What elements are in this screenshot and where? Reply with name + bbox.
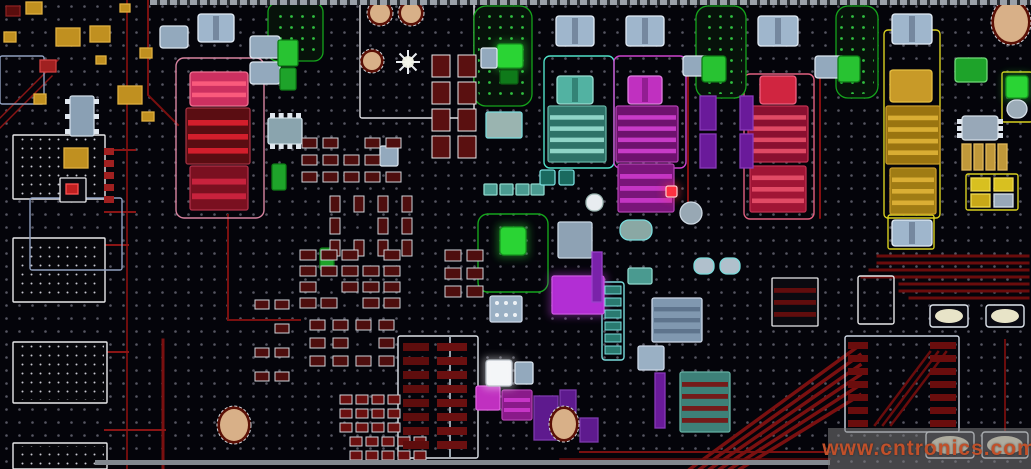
capacitor-gray-small <box>250 36 280 58</box>
soic-pads-left <box>403 427 429 435</box>
chip-cluster <box>365 172 380 182</box>
ic-gray-right-pin <box>998 119 1003 124</box>
chip-cluster <box>255 300 269 309</box>
pad-grid-red <box>382 451 394 460</box>
pad-grid-red <box>356 409 368 418</box>
chip-cluster <box>333 356 348 366</box>
led-white-glow <box>483 357 515 389</box>
block-magenta-striped-stripe <box>504 398 530 402</box>
component-teal-mid <box>628 268 652 284</box>
resistor-column <box>432 109 450 131</box>
component-darkred <box>6 6 20 16</box>
cap-footprint-1-dots <box>16 138 102 196</box>
pad-gold-strip <box>998 144 1007 170</box>
chip-cluster <box>386 172 401 182</box>
ic-gray-pins-pin <box>287 113 292 118</box>
chip-cluster <box>378 196 388 212</box>
soic-pads-inner <box>437 427 467 435</box>
capacitor-gray-small <box>160 26 188 48</box>
chip-cluster <box>356 320 371 330</box>
chip-cluster <box>402 218 412 234</box>
top-ruler <box>150 0 1031 5</box>
strip-purple <box>700 96 716 130</box>
capacitor-round-gray <box>720 258 740 274</box>
mount-hole <box>552 409 576 439</box>
component-teal-small <box>516 184 529 195</box>
ic-gray-small <box>638 346 664 370</box>
inductor-teal-big-stripe <box>682 394 728 399</box>
chip-cluster <box>300 298 316 308</box>
pad-grid-red <box>382 437 394 446</box>
chip-cluster <box>342 250 358 260</box>
component-red <box>40 60 56 72</box>
chip-cluster <box>342 266 358 276</box>
pad-magenta <box>476 386 500 410</box>
pad-grid-red <box>388 423 400 432</box>
ic-gray-6pin-pin <box>495 313 499 317</box>
chip-cluster <box>379 320 394 330</box>
pad-grid-red <box>340 409 352 418</box>
chip-cluster <box>363 266 379 276</box>
box-white-pads-stripe <box>774 300 816 305</box>
strip-purple <box>580 418 598 442</box>
teal-strip-pins <box>605 346 621 354</box>
chip-cluster <box>275 348 289 357</box>
chip-cluster <box>402 196 412 212</box>
pad-grid-red <box>372 423 384 432</box>
chip-cluster <box>365 155 380 165</box>
resistor-column <box>432 136 450 158</box>
pad-grid-red <box>414 451 426 460</box>
chip-cluster <box>356 356 371 366</box>
soic-pads-left <box>403 441 429 449</box>
soic-right-pads-r <box>930 368 956 375</box>
led-green-glow <box>494 41 526 71</box>
capacitor-gray-stripe <box>213 16 219 40</box>
ic-gray-right-pin <box>998 133 1003 138</box>
ic-body-topleft-pin <box>94 129 99 134</box>
pad-gold <box>90 26 110 42</box>
soic-right-pads-r <box>930 381 956 388</box>
ic-gray-right-pin <box>957 119 962 124</box>
pad-column-small <box>104 172 114 179</box>
chip-cluster <box>344 155 359 165</box>
soic-right-pads-l <box>848 381 868 388</box>
chip-cluster <box>323 138 338 148</box>
pad-grid-red <box>372 409 384 418</box>
chip-cluster <box>330 218 340 234</box>
capsule-pad-pad <box>991 309 1019 323</box>
cap-footprint-3-dots <box>16 345 104 400</box>
transistor-green <box>702 56 726 82</box>
chip-cluster <box>384 298 400 308</box>
component-green-small <box>272 164 286 190</box>
chip-cluster <box>445 286 461 297</box>
capacitor-gray-stripe <box>909 16 915 42</box>
ic-gray-6pin-pin <box>495 301 499 305</box>
component-teal-green <box>540 170 555 185</box>
soic-right-pads-l <box>848 420 868 427</box>
transistor-green <box>838 56 860 82</box>
mount-hole <box>994 2 1028 42</box>
ic-gray-6pin <box>490 296 522 322</box>
chip-cluster <box>467 286 483 297</box>
pad-gold <box>34 94 46 104</box>
capacitor-gray-small <box>250 62 280 84</box>
pad-column-small <box>104 196 114 203</box>
soic-right-pads-r <box>930 342 956 349</box>
pad-gold <box>26 2 42 14</box>
ic-body-topleft-pin <box>65 99 70 104</box>
pad-yellow <box>971 194 990 207</box>
chip-cluster <box>379 338 394 348</box>
ic-gray-pins-pin <box>270 144 275 149</box>
ic-body-topleft-pin <box>65 129 70 134</box>
pad-gold-strip <box>986 144 995 170</box>
pad-gold <box>118 86 142 104</box>
fiducial-starburst <box>402 56 414 68</box>
bottom-edge-bar <box>95 460 830 465</box>
soic-right-pads-r <box>930 394 956 401</box>
pad-yellow <box>994 194 1013 207</box>
resistor-column <box>432 82 450 104</box>
capacitor-gray-stripe <box>909 222 915 244</box>
resistor-column <box>458 109 476 131</box>
pad-gold <box>120 4 130 12</box>
chip-cluster <box>333 338 348 348</box>
pad-grid-red <box>340 395 352 404</box>
capacitor-gray-small <box>380 146 398 166</box>
chip-cluster <box>384 282 400 292</box>
component-round-gray <box>680 202 702 224</box>
chip-cluster <box>323 172 338 182</box>
soic-right-pads-l <box>848 368 868 375</box>
chip-cluster <box>321 250 337 260</box>
chip-cluster <box>321 298 337 308</box>
pad-round-white <box>586 194 603 211</box>
ic-gray-right-pin <box>998 126 1003 131</box>
chip-cluster <box>354 196 364 212</box>
chip-cluster <box>363 298 379 308</box>
mount-hole <box>370 3 390 23</box>
soic-right-pads-l <box>848 342 868 349</box>
ic-gray-pins-pin <box>279 144 284 149</box>
capacitor-round-gray <box>694 258 714 274</box>
chip-cluster <box>300 266 316 276</box>
component-teal-small <box>484 184 497 195</box>
pad-block-teal <box>486 112 522 138</box>
mount-hole <box>401 3 421 23</box>
chip-cluster <box>379 356 394 366</box>
led-red-glow <box>663 183 680 200</box>
chip-cluster <box>342 282 358 292</box>
soic-pads-inner <box>437 357 467 365</box>
pad-grid-red <box>388 409 400 418</box>
ic-gray-pins-pin <box>287 144 292 149</box>
transistor-green <box>280 68 296 90</box>
soic-pads-inner <box>437 343 467 351</box>
chip-cluster <box>384 250 400 260</box>
chip-cluster <box>300 282 316 292</box>
pad-gold-strip <box>962 144 971 170</box>
ic-steel-stripe <box>654 318 700 322</box>
resistor-column <box>458 136 476 158</box>
chip-cluster <box>365 138 380 148</box>
pcb-layout-screenshot: www.cntronics.com <box>0 0 1031 469</box>
component-gray-block <box>558 222 592 258</box>
box-white-pads-stripe <box>774 312 816 317</box>
soic-right-pads-l <box>848 355 868 362</box>
ic-gray-pins-pin <box>296 144 301 149</box>
capacitor-gray-stripe <box>642 18 648 44</box>
pad-grid-red <box>388 395 400 404</box>
component-teal-green <box>559 170 574 185</box>
chip-cluster <box>300 250 316 260</box>
chip-cluster <box>384 266 400 276</box>
resistor-column <box>432 55 450 77</box>
soic-pads-inner <box>437 399 467 407</box>
chip-cluster <box>445 268 461 279</box>
pad-grid-red <box>350 437 362 446</box>
chip-cluster <box>386 138 401 148</box>
chip-cluster <box>344 172 359 182</box>
led-green-glow <box>497 224 529 258</box>
pad-grid-red <box>372 395 384 404</box>
inductor-teal-big-stripe <box>682 382 728 387</box>
soic-right-pads-l <box>848 394 868 401</box>
component-gray-small <box>481 48 497 68</box>
ic-gray-6pin-pin <box>513 313 517 317</box>
teal-strip-pins <box>605 322 621 330</box>
transistor-green <box>278 40 298 66</box>
soic-pads-left <box>403 413 429 421</box>
component-teal-small <box>500 184 513 195</box>
ic-steel-stripe <box>654 329 700 333</box>
teal-strip-pins <box>605 334 621 342</box>
cap-footprint-4-dots <box>16 446 104 466</box>
pad-grid-red <box>366 451 378 460</box>
chip-cluster <box>467 250 483 261</box>
pcb-board-canvas[interactable] <box>0 0 1031 469</box>
ic-gray-right-pin <box>957 133 962 138</box>
soic-pads-inner <box>437 385 467 393</box>
chip-cluster <box>302 155 317 165</box>
chip-cluster <box>255 348 269 357</box>
pad-gold <box>4 32 16 42</box>
strip-purple <box>700 134 716 168</box>
soic-right-pads-r <box>930 420 956 427</box>
inductor-teal-big <box>680 372 730 432</box>
soic-right-pads-r <box>930 355 956 362</box>
component-gray-small <box>515 362 533 384</box>
teal-strip-pins <box>605 298 621 306</box>
capacitor-gray-stripe <box>775 18 781 44</box>
pad-column-small <box>104 160 114 167</box>
resistor-column <box>458 55 476 77</box>
teal-strip-pins <box>605 310 621 318</box>
box-white-pads-stripe <box>774 288 816 293</box>
chip-cluster <box>323 155 338 165</box>
chip-cluster <box>310 356 325 366</box>
ic-body-topleft-pin <box>65 114 70 119</box>
pad-grid-red <box>340 423 352 432</box>
strip-purple <box>740 96 753 130</box>
chip-cluster <box>310 320 325 330</box>
soic-pads-inner <box>437 413 467 421</box>
chip-cluster <box>330 196 340 212</box>
ic-gray-6pin-pin <box>513 301 517 305</box>
inductor-teal-big-stripe <box>682 418 728 423</box>
chip-cluster <box>302 172 317 182</box>
pad-grid-red <box>366 437 378 446</box>
soic-pads-left <box>403 385 429 393</box>
pad-gold <box>142 112 154 121</box>
pad-gold <box>96 56 106 64</box>
led-green-glow <box>1003 73 1031 101</box>
pad-yellow <box>994 178 1013 191</box>
ic-body-topleft-pin <box>94 99 99 104</box>
chip-cluster <box>402 240 412 256</box>
mount-hole <box>363 52 381 70</box>
ic-body-topleft <box>70 96 94 136</box>
ic-body-topleft-pin <box>94 114 99 119</box>
strip-purple <box>740 134 753 168</box>
component-round-gray <box>1007 100 1027 118</box>
block-magenta-striped-stripe <box>504 408 530 412</box>
inductor-teal-big-stripe <box>682 406 728 411</box>
chip-cluster <box>445 250 461 261</box>
component-green-dark <box>500 70 518 84</box>
ic-gray-6pin-pin <box>504 313 508 317</box>
ic-gray-pins-pin <box>279 113 284 118</box>
chip-cluster <box>302 138 317 148</box>
chip-cluster <box>275 324 289 333</box>
ic-steel-stripe <box>654 307 700 311</box>
mount-hole <box>220 409 248 441</box>
soic-pads-left <box>403 399 429 407</box>
chip-cluster <box>467 268 483 279</box>
chip-cluster <box>321 266 337 276</box>
pad-column-small <box>104 148 114 155</box>
pad-grid-red <box>398 451 410 460</box>
pad-gold <box>64 148 88 168</box>
capsule-pad-pad <box>935 309 963 323</box>
chip-cluster <box>275 372 289 381</box>
soic-pads-left <box>403 343 429 351</box>
ic-gray-right-pin <box>957 126 962 131</box>
pad-red-center <box>66 184 78 194</box>
soic-pads-inner <box>437 371 467 379</box>
capsule-teal <box>620 220 652 240</box>
chip-cluster <box>275 300 289 309</box>
pad-column-small <box>104 184 114 191</box>
ic-gray-pins <box>268 118 302 144</box>
chip-cluster <box>378 218 388 234</box>
chip-cluster <box>363 282 379 292</box>
pad-gold-strip <box>974 144 983 170</box>
soic-right-pads-r <box>930 407 956 414</box>
capacitor-gray-stripe <box>572 18 578 44</box>
ic-gray-6pin-pin <box>504 301 508 305</box>
soic-right-pads-l <box>848 407 868 414</box>
ic-gray-right <box>962 116 998 140</box>
pad-grid-red <box>356 423 368 432</box>
pad-grid-red <box>356 395 368 404</box>
resistor-column <box>458 82 476 104</box>
soic-pads-left <box>403 357 429 365</box>
chip-cluster <box>333 320 348 330</box>
capacitor-green <box>955 58 987 82</box>
ic-gray-pins-pin <box>296 113 301 118</box>
block-magenta-striped <box>502 390 532 420</box>
ic-gray-pins-pin <box>270 113 275 118</box>
watermark-band: www.cntronics.com <box>828 428 1031 469</box>
strip-purple <box>655 373 665 428</box>
pad-grid-red <box>350 451 362 460</box>
soic-pads-inner <box>437 441 467 449</box>
watermark-text: www.cntronics.com <box>822 437 1031 461</box>
soic-pads-left <box>403 371 429 379</box>
pad-yellow <box>971 178 990 191</box>
chip-cluster <box>310 338 325 348</box>
pad-gold <box>56 28 80 46</box>
pad-gold <box>140 48 152 58</box>
chip-cluster <box>255 372 269 381</box>
